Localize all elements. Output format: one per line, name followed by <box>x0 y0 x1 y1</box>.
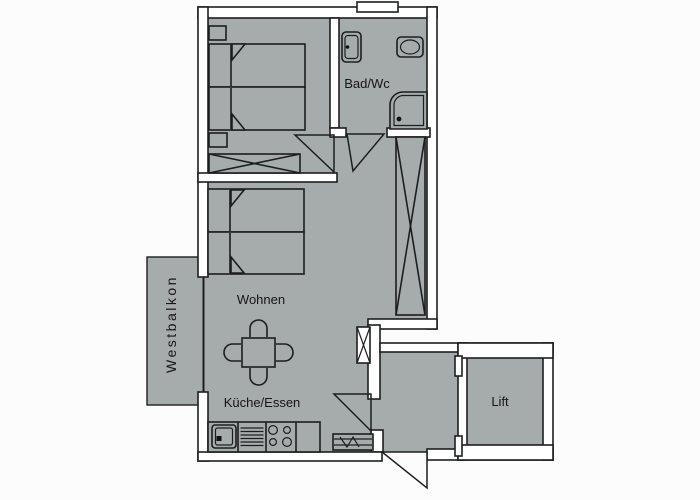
wall-lift-top <box>458 343 553 358</box>
wall-lift-bottom <box>458 445 553 460</box>
floorplan: Bad/Wc Wohnen Küche/Essen Lift Westbalko… <box>0 0 700 500</box>
living-room-beds <box>208 189 304 274</box>
shower-drain <box>397 117 402 122</box>
chair <box>250 368 267 385</box>
label-bad-wc: Bad/Wc <box>344 76 390 91</box>
lift-door-jamb-top <box>455 356 462 376</box>
bed <box>208 189 304 232</box>
floorplan-drawing: Bad/Wc Wohnen Küche/Essen Lift Westbalko… <box>0 0 700 500</box>
label-wohnen: Wohnen <box>237 292 285 307</box>
radiator <box>333 434 373 450</box>
dining-table <box>242 338 275 367</box>
nightstand <box>209 26 226 40</box>
wall-right <box>427 7 437 329</box>
wall-bedroom-partition <box>198 173 337 182</box>
bath-window <box>357 2 398 12</box>
chair <box>224 344 241 361</box>
bed <box>209 87 305 130</box>
label-lift: Lift <box>491 394 509 409</box>
label-westbalkon: Westbalkon <box>163 275 179 373</box>
wall-bath-left <box>330 18 339 128</box>
bed <box>208 232 304 274</box>
wall-top <box>198 7 437 18</box>
wall-kitchen-bottom <box>198 452 382 461</box>
chair <box>250 320 267 337</box>
wall-annex-right <box>543 343 553 460</box>
lift-door-jamb-bottom <box>455 436 462 456</box>
kitchen-counter <box>208 422 320 452</box>
washbasin-drain <box>346 45 350 49</box>
nightstand <box>209 133 227 147</box>
vestibule-floor <box>376 348 462 452</box>
wall-left-upper <box>198 7 208 277</box>
sink-tap <box>217 436 222 441</box>
chair <box>276 344 293 361</box>
wall-left-lower <box>198 392 208 461</box>
label-kueche-essen: Küche/Essen <box>224 395 301 410</box>
bed <box>209 44 305 87</box>
corner-shower <box>390 92 427 129</box>
